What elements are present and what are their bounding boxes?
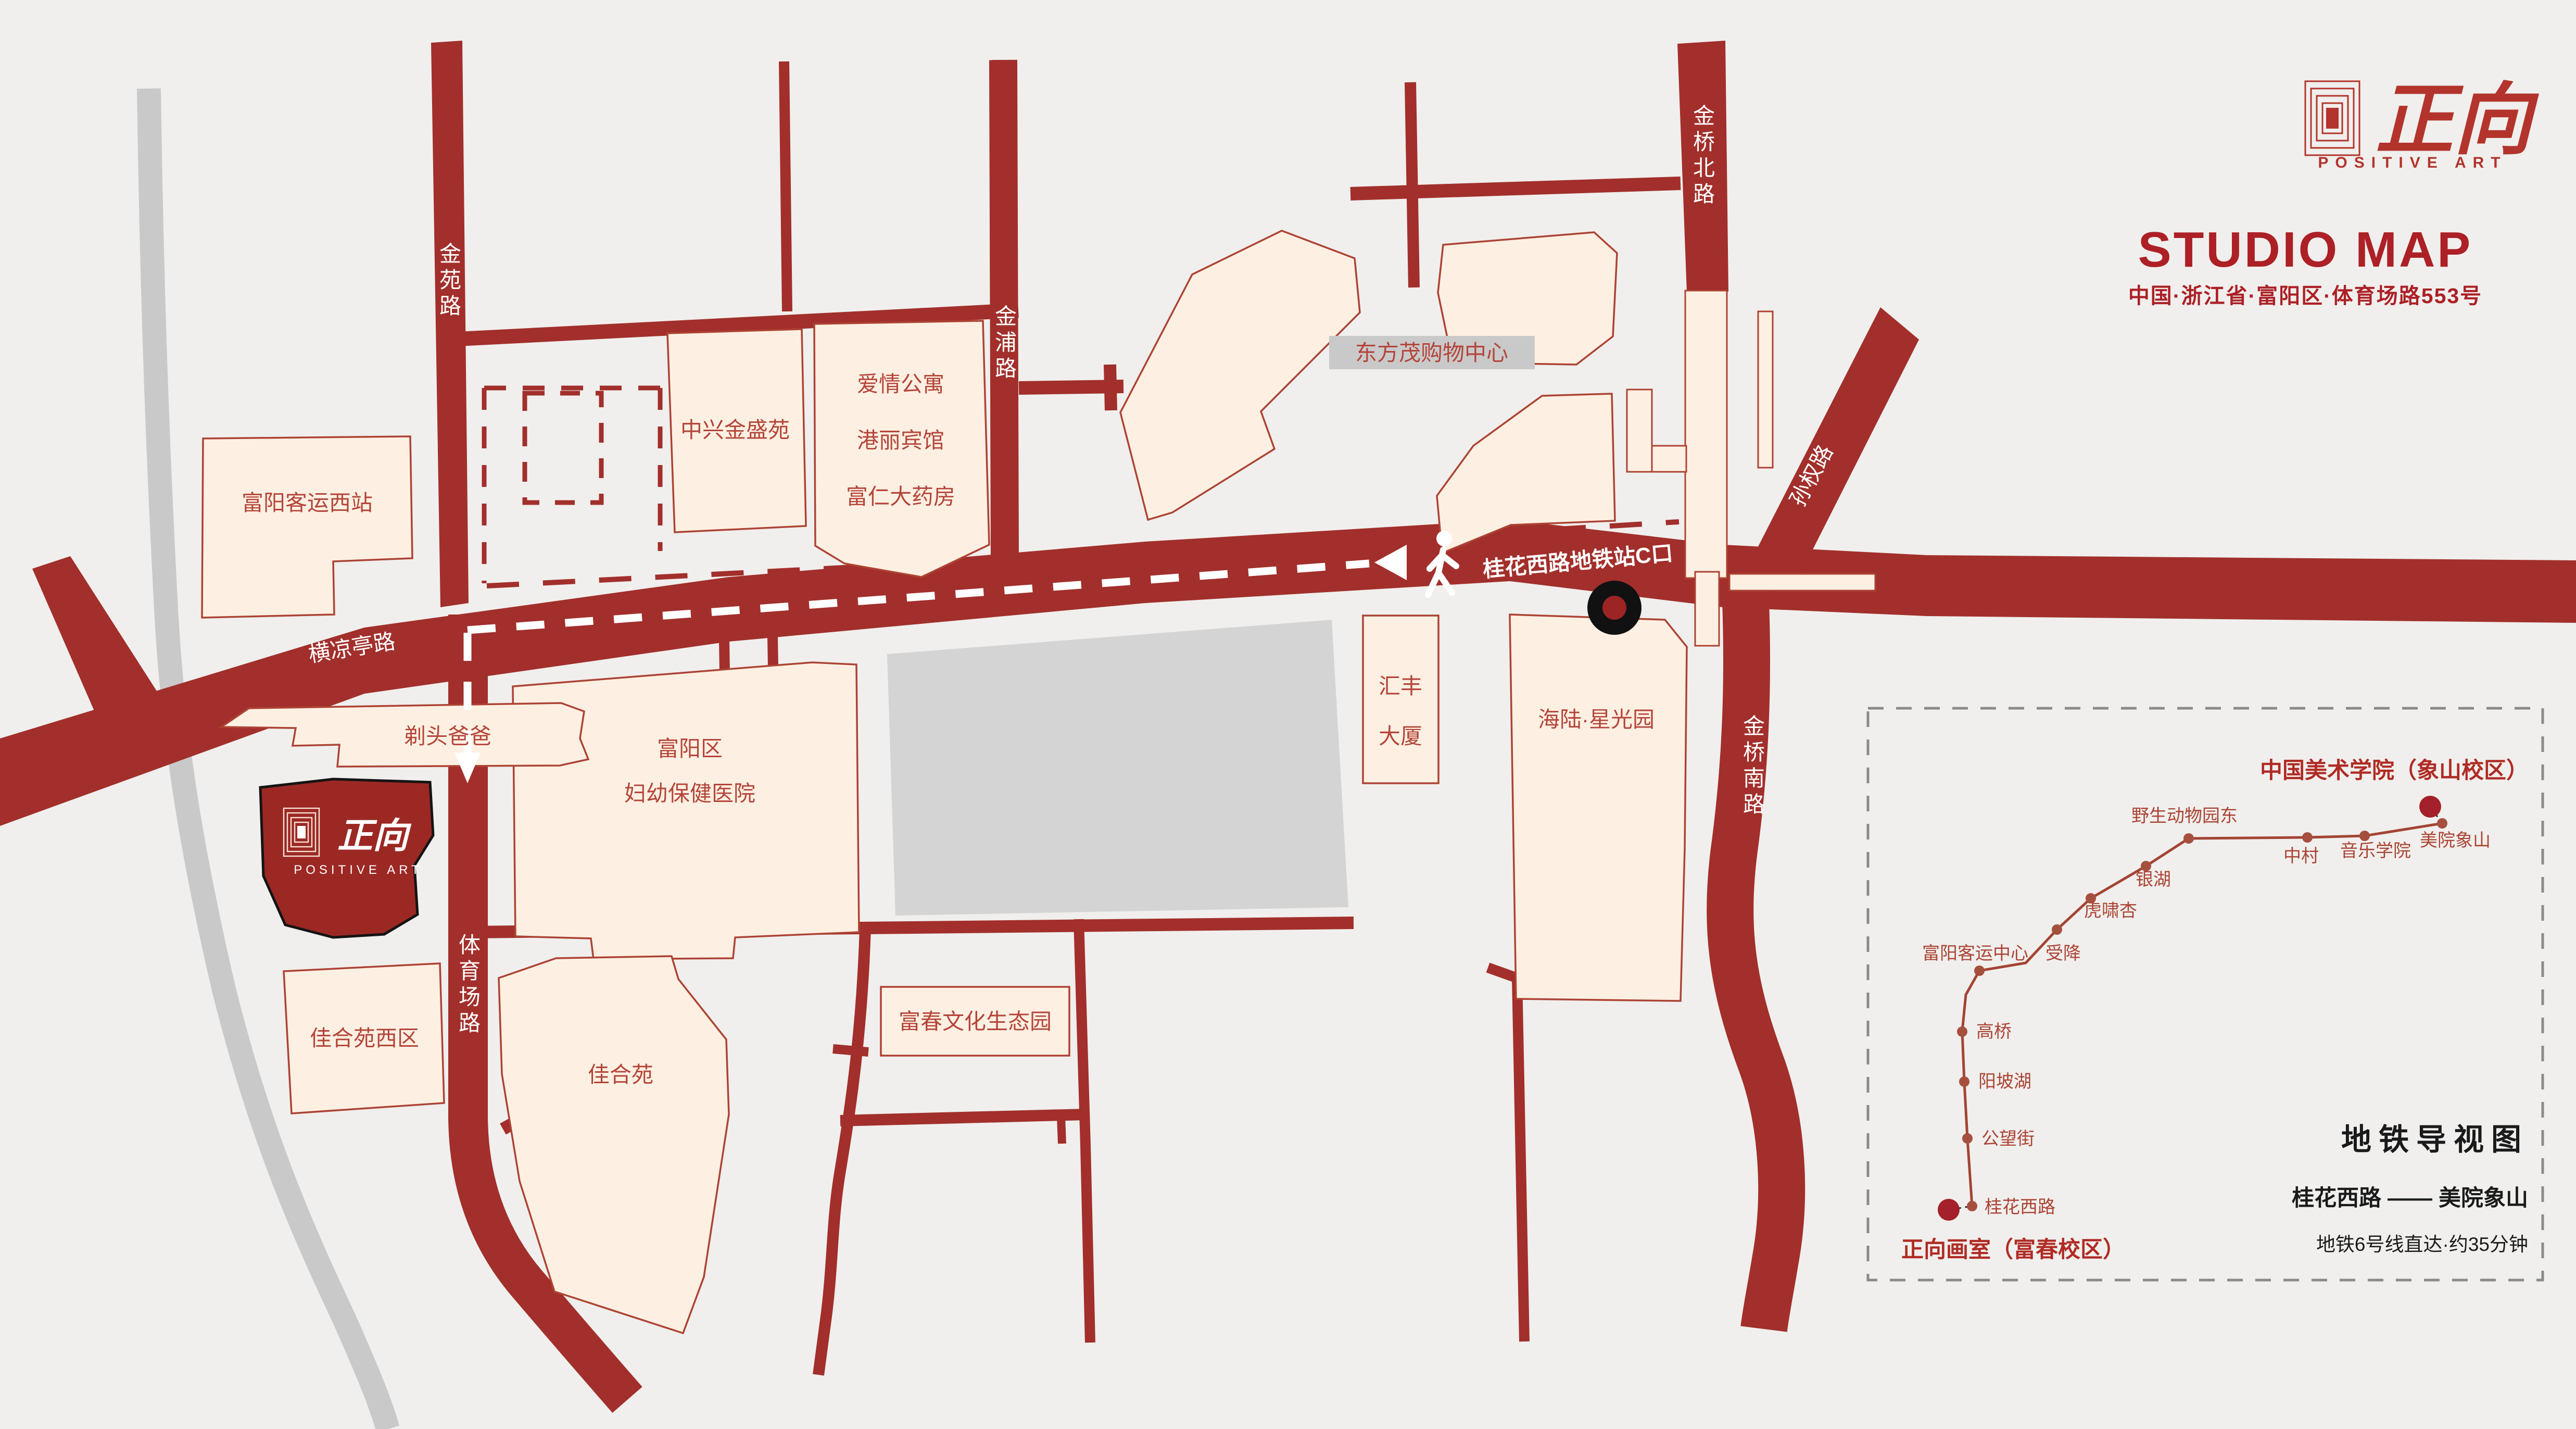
metro-station-label: 中村 <box>2283 846 2319 866</box>
road-label-tiyuchang: 体育场路 <box>456 933 481 1037</box>
station-passage-main <box>1685 291 1727 578</box>
label-zhongxing: 中兴金盛苑 <box>680 418 790 442</box>
label-dongfangmao: 东方茂购物中心 <box>1355 341 1508 365</box>
brand-logo-icon <box>2305 81 2359 155</box>
metro-station-label: 桂花西路 <box>1985 1197 2055 1217</box>
building-hailu <box>1510 615 1687 1001</box>
road-thin-southA <box>818 928 865 1375</box>
road-label-jinyuan: 金苑路 <box>437 242 461 320</box>
label-fuchun-eco: 富春文化生态园 <box>899 1009 1052 1034</box>
road-thin-vertical1 <box>784 61 787 311</box>
label-hospital-1: 富阳区 <box>657 736 723 761</box>
road-thin-southA-stub <box>833 1049 868 1052</box>
metro-exit-marker <box>1587 581 1641 635</box>
brand-cn: 正向 <box>2376 76 2540 164</box>
metro-station-label: 美院象山 <box>2420 831 2491 850</box>
header-brand: 正向 POSITIVE ART STUDIO MAP 中国·浙江省·富阳区·体育… <box>2128 76 2540 308</box>
gray-plaza-block <box>887 620 1348 916</box>
road-thin-southH-stub <box>1061 1117 1062 1144</box>
road-thin-north2 <box>1350 183 1681 194</box>
metro-station-label: 银湖 <box>2136 870 2171 889</box>
hospital-stub1 <box>724 610 725 672</box>
metro-station-label: 阳坡湖 <box>1978 1072 2031 1092</box>
label-jiaheyuan: 佳合苑 <box>588 1062 653 1087</box>
metro-station-label: 公望街 <box>1981 1129 2035 1149</box>
block-dash-inner-rect <box>525 393 601 503</box>
brand-en: POSITIVE ART <box>2318 154 2507 171</box>
metro-station-label: 音乐学院 <box>2340 841 2411 861</box>
metro-station-label: 野生动物园东 <box>2131 806 2238 826</box>
label-hailu: 海陆·星光园 <box>1538 707 1655 732</box>
header-address: 中国·浙江省·富阳区·体育场路553号 <box>2128 284 2482 308</box>
metro-terminus-label: 中国美术学院（象山校区） <box>2260 758 2529 783</box>
road-thin-southC <box>1488 968 1524 1342</box>
metro-panel-route: 桂花西路 —— 美院象山 <box>2292 1186 2528 1211</box>
building-fuyang-bus-west <box>202 436 412 618</box>
label-huifeng-1: 汇丰 <box>1379 674 1422 698</box>
metro-station-label: 虎啸杏 <box>2084 901 2137 921</box>
label-fuyang-bus-west: 富阳客运西站 <box>242 491 373 515</box>
studio-map-canvas: 横凉亭路 桂花西路地铁站C口 金苑路 金浦路 金桥北路 金桥南路 体育场路 孙权… <box>0 0 2576 1429</box>
label-gangli: 港丽宾馆 <box>857 428 944 453</box>
studio-logo-cn: 正向 <box>337 816 412 856</box>
station-passage-south-stub <box>1695 572 1719 646</box>
road-thin-southB <box>1079 919 1090 1343</box>
studio-building: 正向 POSITIVE ART <box>260 779 433 937</box>
metro-panel-note: 地铁6号线直达·约35分钟 <box>2316 1234 2528 1255</box>
road-thin-vertical2 <box>1410 82 1414 287</box>
road-label-jinqiaonan: 金桥南路 <box>1740 714 1765 819</box>
label-huifeng-2: 大厦 <box>1379 724 1422 748</box>
road-jinqiaonan <box>1730 587 1782 1329</box>
label-hospital-2: 妇幼保健医院 <box>624 781 755 806</box>
building-huifeng <box>1363 616 1438 783</box>
building-mall-west <box>1120 231 1360 520</box>
label-furen: 富仁大药房 <box>846 484 955 509</box>
label-aiqing: 爱情公寓 <box>857 372 944 396</box>
road-label-jinpu: 金浦路 <box>992 305 1017 383</box>
studio-logo-en: POSITIVE ART <box>294 863 423 877</box>
station-passage-right-vert <box>1758 311 1773 468</box>
metro-origin-label: 正向画室（富春校区） <box>1901 1237 2125 1262</box>
metro-panel: 桂花西路 公望街 阳坡湖 高桥 富阳客运中心 受降 虎啸杏 银湖 野生动物园东 … <box>1868 708 2543 1280</box>
label-jiaheyuan-west: 佳合苑西区 <box>310 1026 419 1050</box>
road-thin-southH <box>840 1114 1085 1121</box>
metro-station-label: 高桥 <box>1976 1022 2012 1042</box>
metro-terminus-dot <box>2419 796 2441 818</box>
road-branch-northwest <box>32 556 172 739</box>
road-jinyuan <box>431 41 469 607</box>
hospital-stub2 <box>772 607 773 668</box>
road-stub-tick <box>1110 365 1111 410</box>
road-label-jinqiaobei: 金桥北路 <box>1690 104 1715 208</box>
metro-station-label: 受降 <box>2045 944 2081 963</box>
label-titoubaba: 剃头爸爸 <box>404 724 491 748</box>
metro-station-label: 富阳客运中心 <box>1922 944 2028 963</box>
page-title: STUDIO MAP <box>2138 222 2473 278</box>
metro-origin-dot <box>1938 1199 1960 1221</box>
metro-panel-title: 地铁导视图 <box>2341 1123 2529 1157</box>
station-passage-south-bar <box>1729 574 1875 591</box>
station-passage-left-stub <box>1627 390 1652 472</box>
